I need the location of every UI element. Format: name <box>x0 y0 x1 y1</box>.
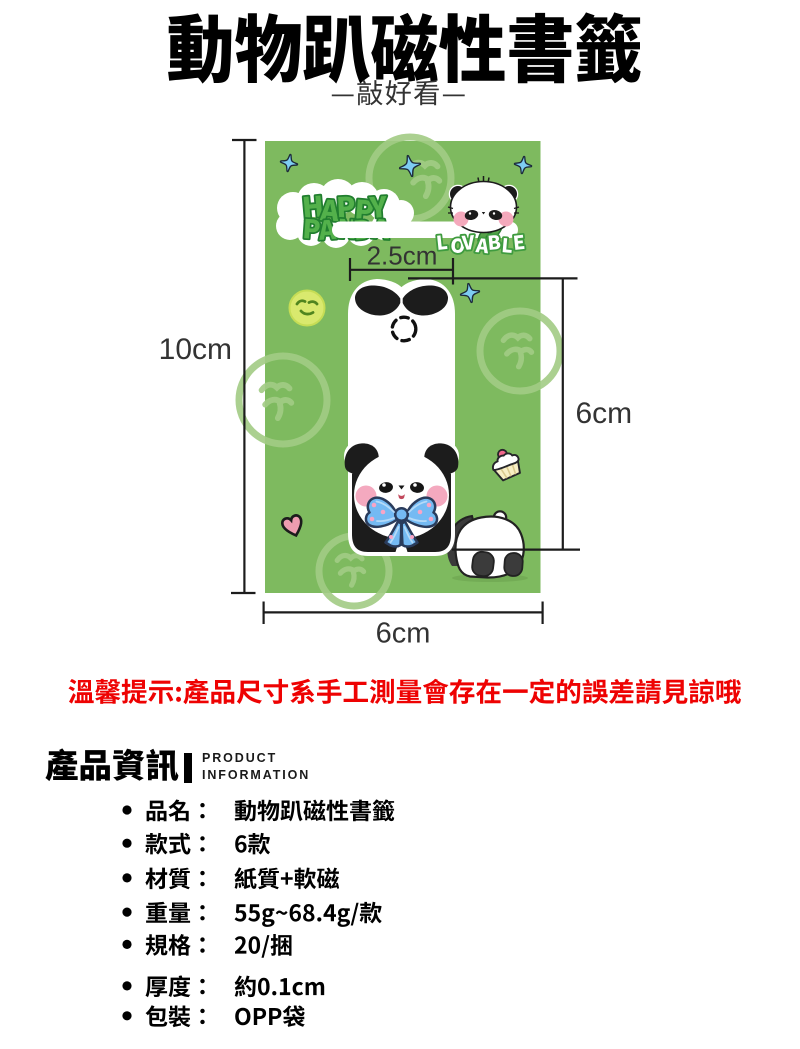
svg-text:2.5cm: 2.5cm <box>367 241 438 271</box>
svg-text:10cm: 10cm <box>159 333 232 366</box>
svg-text:6cm: 6cm <box>376 618 431 650</box>
svg-text:6cm: 6cm <box>576 397 633 430</box>
